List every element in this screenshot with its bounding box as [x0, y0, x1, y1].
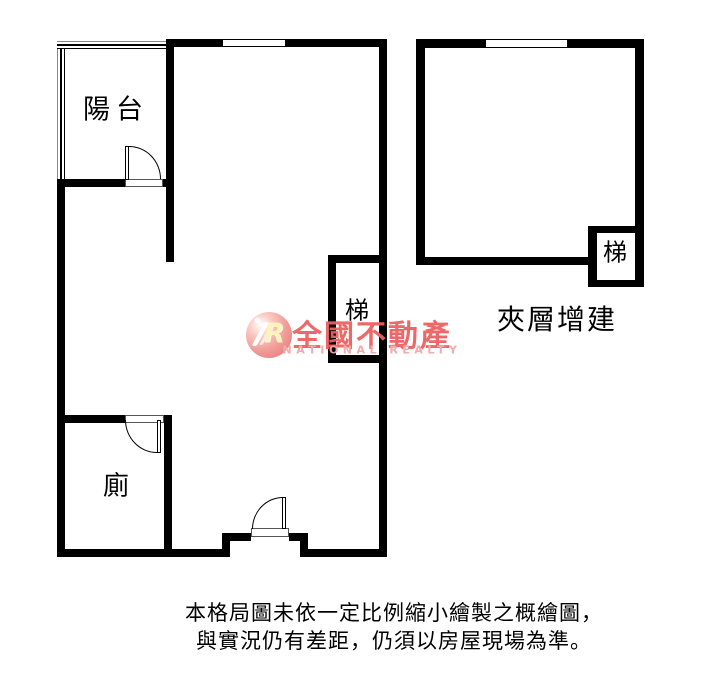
- wall-top-left-segment: [166, 39, 223, 47]
- wall-mezz-stair-bottom: [588, 280, 644, 287]
- wall-mezz-left: [416, 39, 425, 265]
- balcony-railing-wall-left: [57, 41, 65, 179]
- wall-mezz-bottom: [416, 257, 597, 265]
- balcony-door-panel: [125, 146, 129, 180]
- wall-right-outer-left-unit: [379, 39, 387, 557]
- floor-plan-canvas: R 全國不動產 NATIONAL REALTY 陽台 廁 梯 梯 夾層增建 本格…: [0, 0, 703, 673]
- wall-balcony-right: [166, 39, 174, 262]
- wall-mezz-top-right-segment: [567, 39, 644, 48]
- toilet-door-panel: [157, 420, 161, 453]
- wall-toilet-top: [58, 415, 125, 423]
- entry-door-sill: [251, 528, 289, 537]
- balcony-railing-wall-top: [57, 41, 166, 49]
- wall-balcony-bottom-right: [163, 179, 174, 187]
- wall-entry-raised-left: [222, 533, 251, 541]
- entry-door-swing-arc: [252, 497, 283, 529]
- mezzanine-label: 夾層增建: [497, 298, 617, 338]
- wall-toilet-right: [164, 415, 172, 557]
- wall-stair-left-unit-top: [328, 255, 387, 263]
- entry-door-panel: [282, 497, 286, 529]
- balcony-door-sill: [125, 179, 163, 187]
- wall-mezz-right: [635, 39, 644, 287]
- wall-bottom-right-segment: [304, 549, 387, 557]
- stair-left-label: 梯: [345, 291, 369, 326]
- window-main-room: [223, 39, 285, 47]
- stair-right-label: 梯: [603, 233, 627, 268]
- wall-top-right-segment: [285, 39, 387, 47]
- wall-mezz-stair-left: [588, 226, 597, 287]
- toilet-label: 廁: [103, 466, 129, 503]
- balcony-door-swing-arc: [129, 146, 161, 179]
- wall-bottom-left-segment: [57, 549, 226, 557]
- toilet-door-swing-arc: [125, 420, 157, 453]
- wall-balcony-bottom-left: [57, 179, 125, 187]
- brand-name-en-text: NATIONAL REALTY: [282, 344, 461, 357]
- balcony-label: 陽台: [83, 88, 149, 127]
- disclaimer-line-1: 本格局圖未依一定比例縮小繪製之概繪圖，: [185, 597, 603, 627]
- sparkle-icon: [254, 317, 261, 324]
- wall-left-outer: [57, 179, 65, 557]
- disclaimer-line-2: 與實況仍有差距，仍須以房屋現場為準。: [196, 625, 592, 655]
- wall-mezz-top-left-segment: [416, 39, 486, 48]
- window-mezzanine: [486, 39, 567, 48]
